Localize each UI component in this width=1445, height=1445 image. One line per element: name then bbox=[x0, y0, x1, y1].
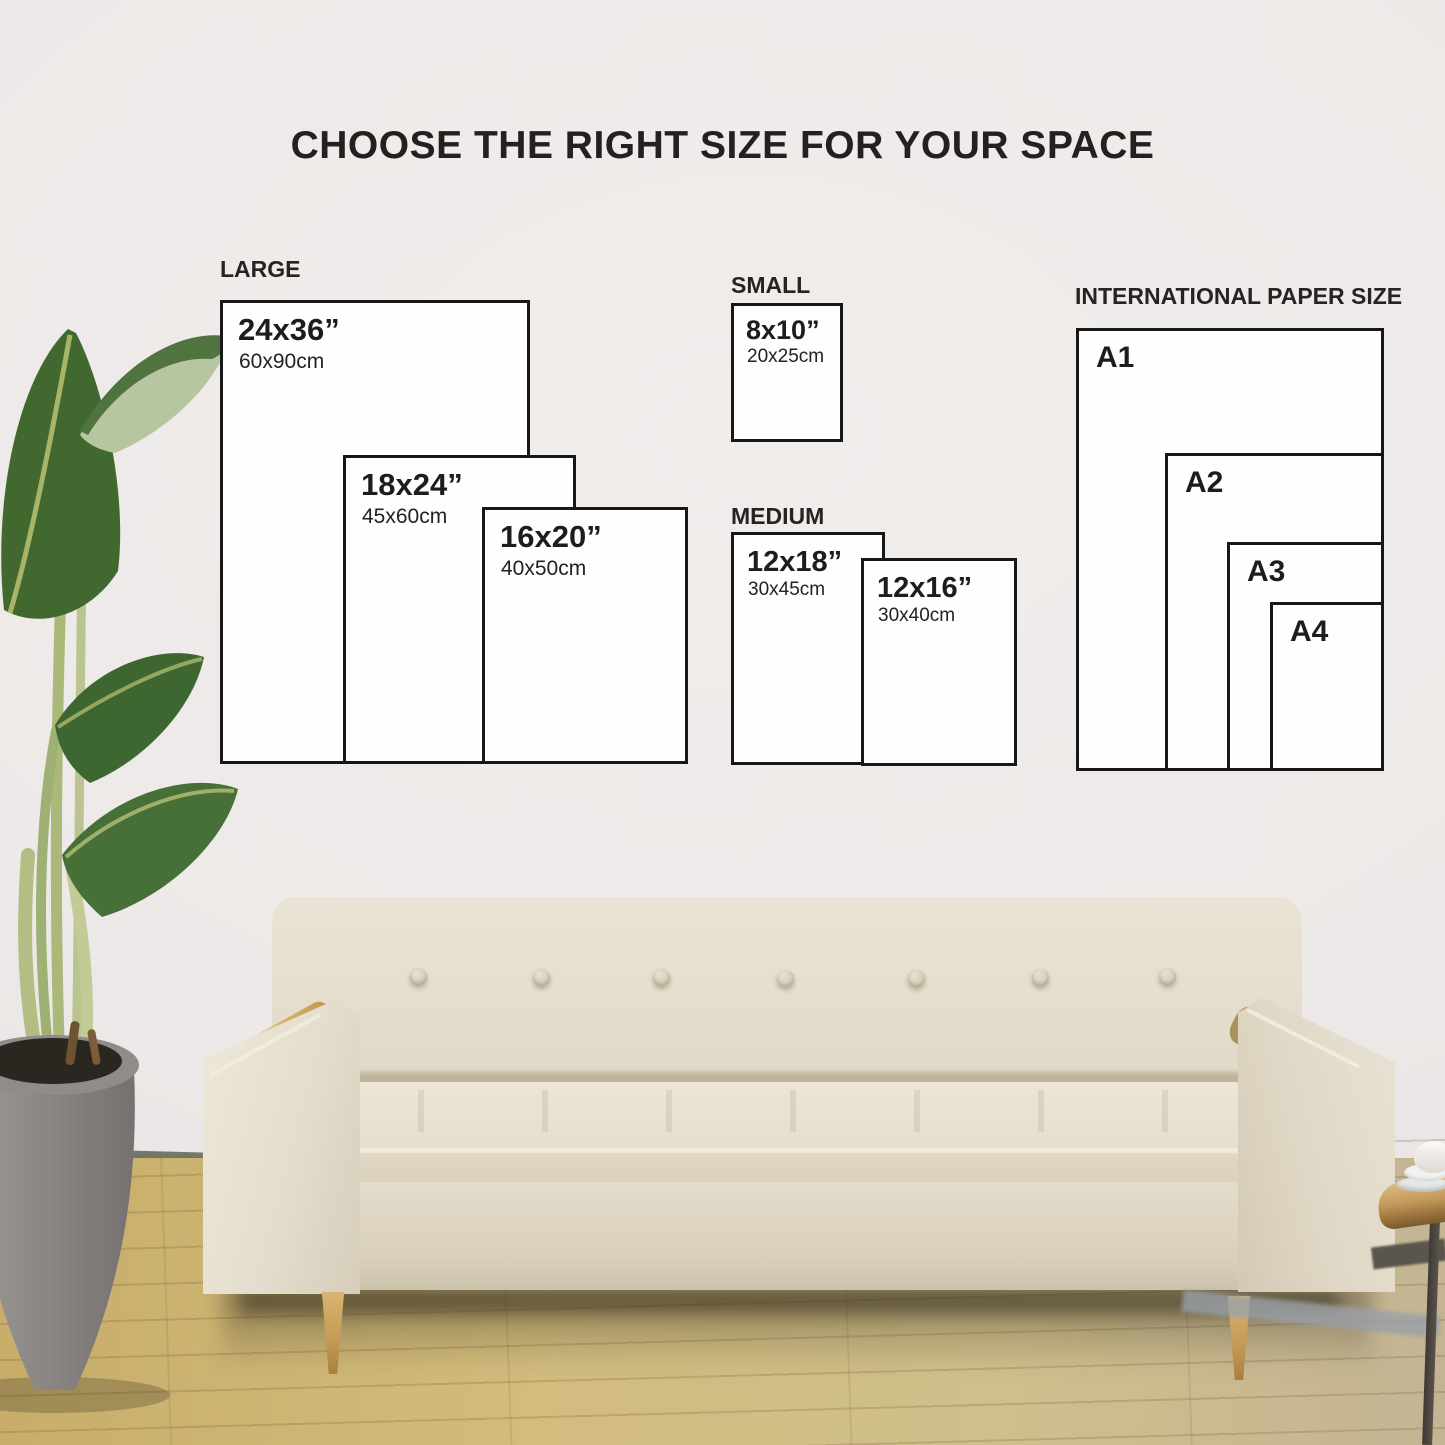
sofa-button bbox=[777, 970, 794, 987]
sofa-shadow-core bbox=[240, 1288, 1340, 1314]
group-label-small: SMALL bbox=[731, 274, 810, 297]
size-name: A1 bbox=[1096, 343, 1381, 373]
size-inches: 8x10” bbox=[746, 315, 840, 345]
size-box-a4: A4 bbox=[1270, 602, 1384, 771]
sofa-button bbox=[908, 970, 925, 987]
size-inches: 24x36” bbox=[238, 313, 527, 348]
group-label-medium: MEDIUM bbox=[731, 505, 824, 528]
size-guide-image: CHOOSE THE RIGHT SIZE FOR YOUR SPACE LAR… bbox=[0, 0, 1445, 1445]
size-inches: 18x24” bbox=[361, 468, 573, 503]
size-box-16x20: 16x20” 40x50cm bbox=[482, 507, 688, 764]
size-name: A4 bbox=[1290, 617, 1381, 647]
group-label-large: LARGE bbox=[220, 258, 301, 281]
size-inches: 16x20” bbox=[500, 520, 685, 555]
size-cm: 60x90cm bbox=[239, 349, 527, 374]
size-cm: 20x25cm bbox=[747, 346, 840, 369]
size-cm: 40x50cm bbox=[501, 556, 685, 581]
cup bbox=[1414, 1141, 1445, 1173]
size-box-12x16: 12x16” 30x40cm bbox=[861, 558, 1017, 766]
size-cm: 30x40cm bbox=[878, 605, 1014, 628]
page-title: CHOOSE THE RIGHT SIZE FOR YOUR SPACE bbox=[0, 126, 1445, 165]
sofa-button bbox=[533, 969, 550, 986]
sofa-button bbox=[1032, 969, 1049, 986]
size-box-8x10: 8x10” 20x25cm bbox=[731, 303, 843, 442]
sofa-seat-cushion bbox=[260, 1082, 1338, 1194]
size-inches: 12x16” bbox=[877, 572, 1014, 604]
size-name: A2 bbox=[1185, 468, 1381, 498]
size-name: A3 bbox=[1247, 557, 1381, 587]
sofa-button bbox=[653, 969, 670, 986]
sofa-base bbox=[240, 1182, 1360, 1290]
sofa-button bbox=[1159, 968, 1176, 985]
group-label-international: INTERNATIONAL PAPER SIZE bbox=[1075, 285, 1402, 308]
sofa-button bbox=[410, 968, 427, 985]
